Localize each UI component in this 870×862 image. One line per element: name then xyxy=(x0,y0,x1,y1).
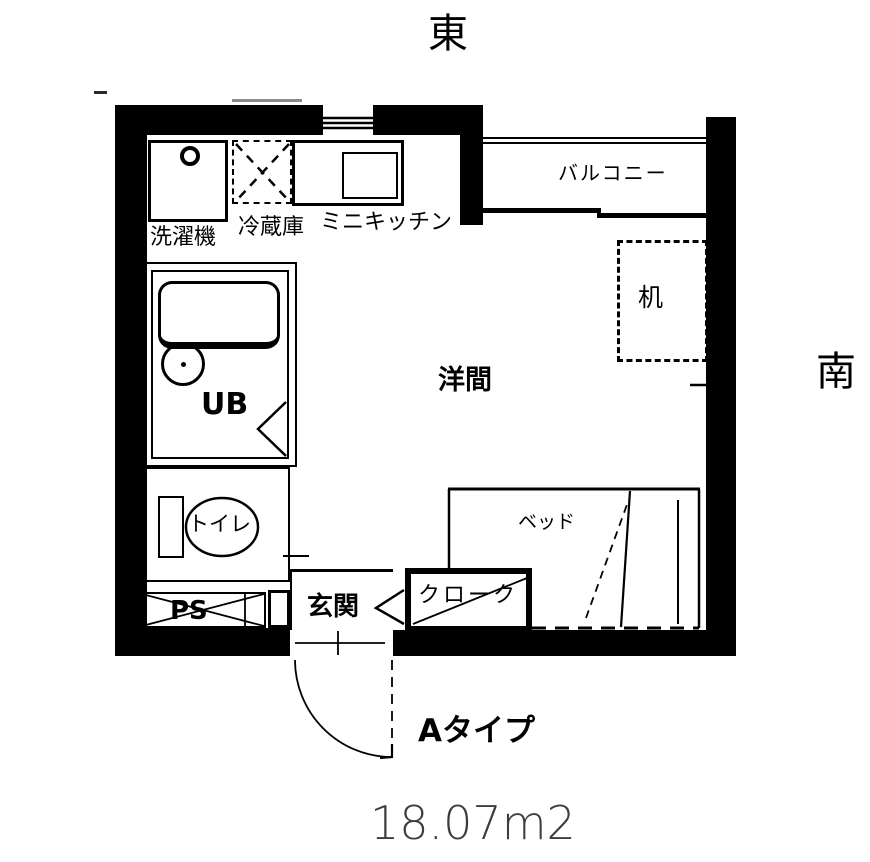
washing-machine-label: 洗濯機 xyxy=(150,227,216,249)
toilet-tank xyxy=(158,496,184,558)
balcony-sliding-door-right xyxy=(597,213,706,218)
entrance-door-leaf-end xyxy=(380,744,392,758)
entrance-threshold-mark xyxy=(295,631,385,655)
unit-type-label: Aタイプ xyxy=(418,716,535,747)
washbasin-drain-icon xyxy=(181,362,186,367)
wall-north-left xyxy=(115,105,323,135)
compass-east-label: 東 xyxy=(428,14,468,54)
entrance-label: 玄関 xyxy=(307,594,359,620)
balcony-label: バルコニー xyxy=(558,163,668,183)
washing-machine-inlet-icon xyxy=(180,146,200,166)
balcony-railing-inner-line xyxy=(483,142,706,144)
scan-artifact xyxy=(94,91,107,94)
floor-plan: 東 南 バルコニー 洗濯機 冷蔵庫 ミニキッチン UB トイレ PS 玄関 クロ… xyxy=(0,0,870,862)
wall-south-left xyxy=(115,628,290,656)
compass-south-label: 南 xyxy=(816,352,856,392)
closet-label: クローク xyxy=(418,585,518,607)
bed-pillow-line xyxy=(621,491,630,627)
wall-balcony-divider xyxy=(460,105,483,225)
pipe-space-label: PS xyxy=(170,598,208,624)
balcony-sliding-door-left xyxy=(483,208,601,213)
scan-artifact xyxy=(232,99,302,102)
bathtub xyxy=(158,281,280,349)
floor-area-label: 18.07m2 xyxy=(370,800,576,846)
window-icon xyxy=(319,118,377,128)
mini-kitchen-sink xyxy=(342,152,398,199)
wall-south-right xyxy=(393,630,706,656)
refrigerator-label: 冷蔵庫 xyxy=(238,217,304,239)
bed-label: ベッド xyxy=(518,513,575,532)
desk-label: 机 xyxy=(638,285,663,310)
entrance-step-edge xyxy=(290,569,393,572)
toilet-label: トイレ xyxy=(188,514,251,535)
unit-bath-label: UB xyxy=(201,390,248,420)
refrigerator xyxy=(232,140,292,204)
entrance-left-edge xyxy=(290,569,292,630)
mini-kitchen-label: ミニキッチン xyxy=(320,212,452,234)
bed-diagonal-line xyxy=(586,499,629,618)
wall-east xyxy=(706,117,736,656)
balcony-railing-outer-line xyxy=(483,137,706,139)
meter-box xyxy=(268,590,290,628)
entrance-door-arrow-icon xyxy=(376,590,404,624)
western-room-label: 洋間 xyxy=(438,367,492,394)
entrance-door-swing-arc xyxy=(295,660,392,757)
